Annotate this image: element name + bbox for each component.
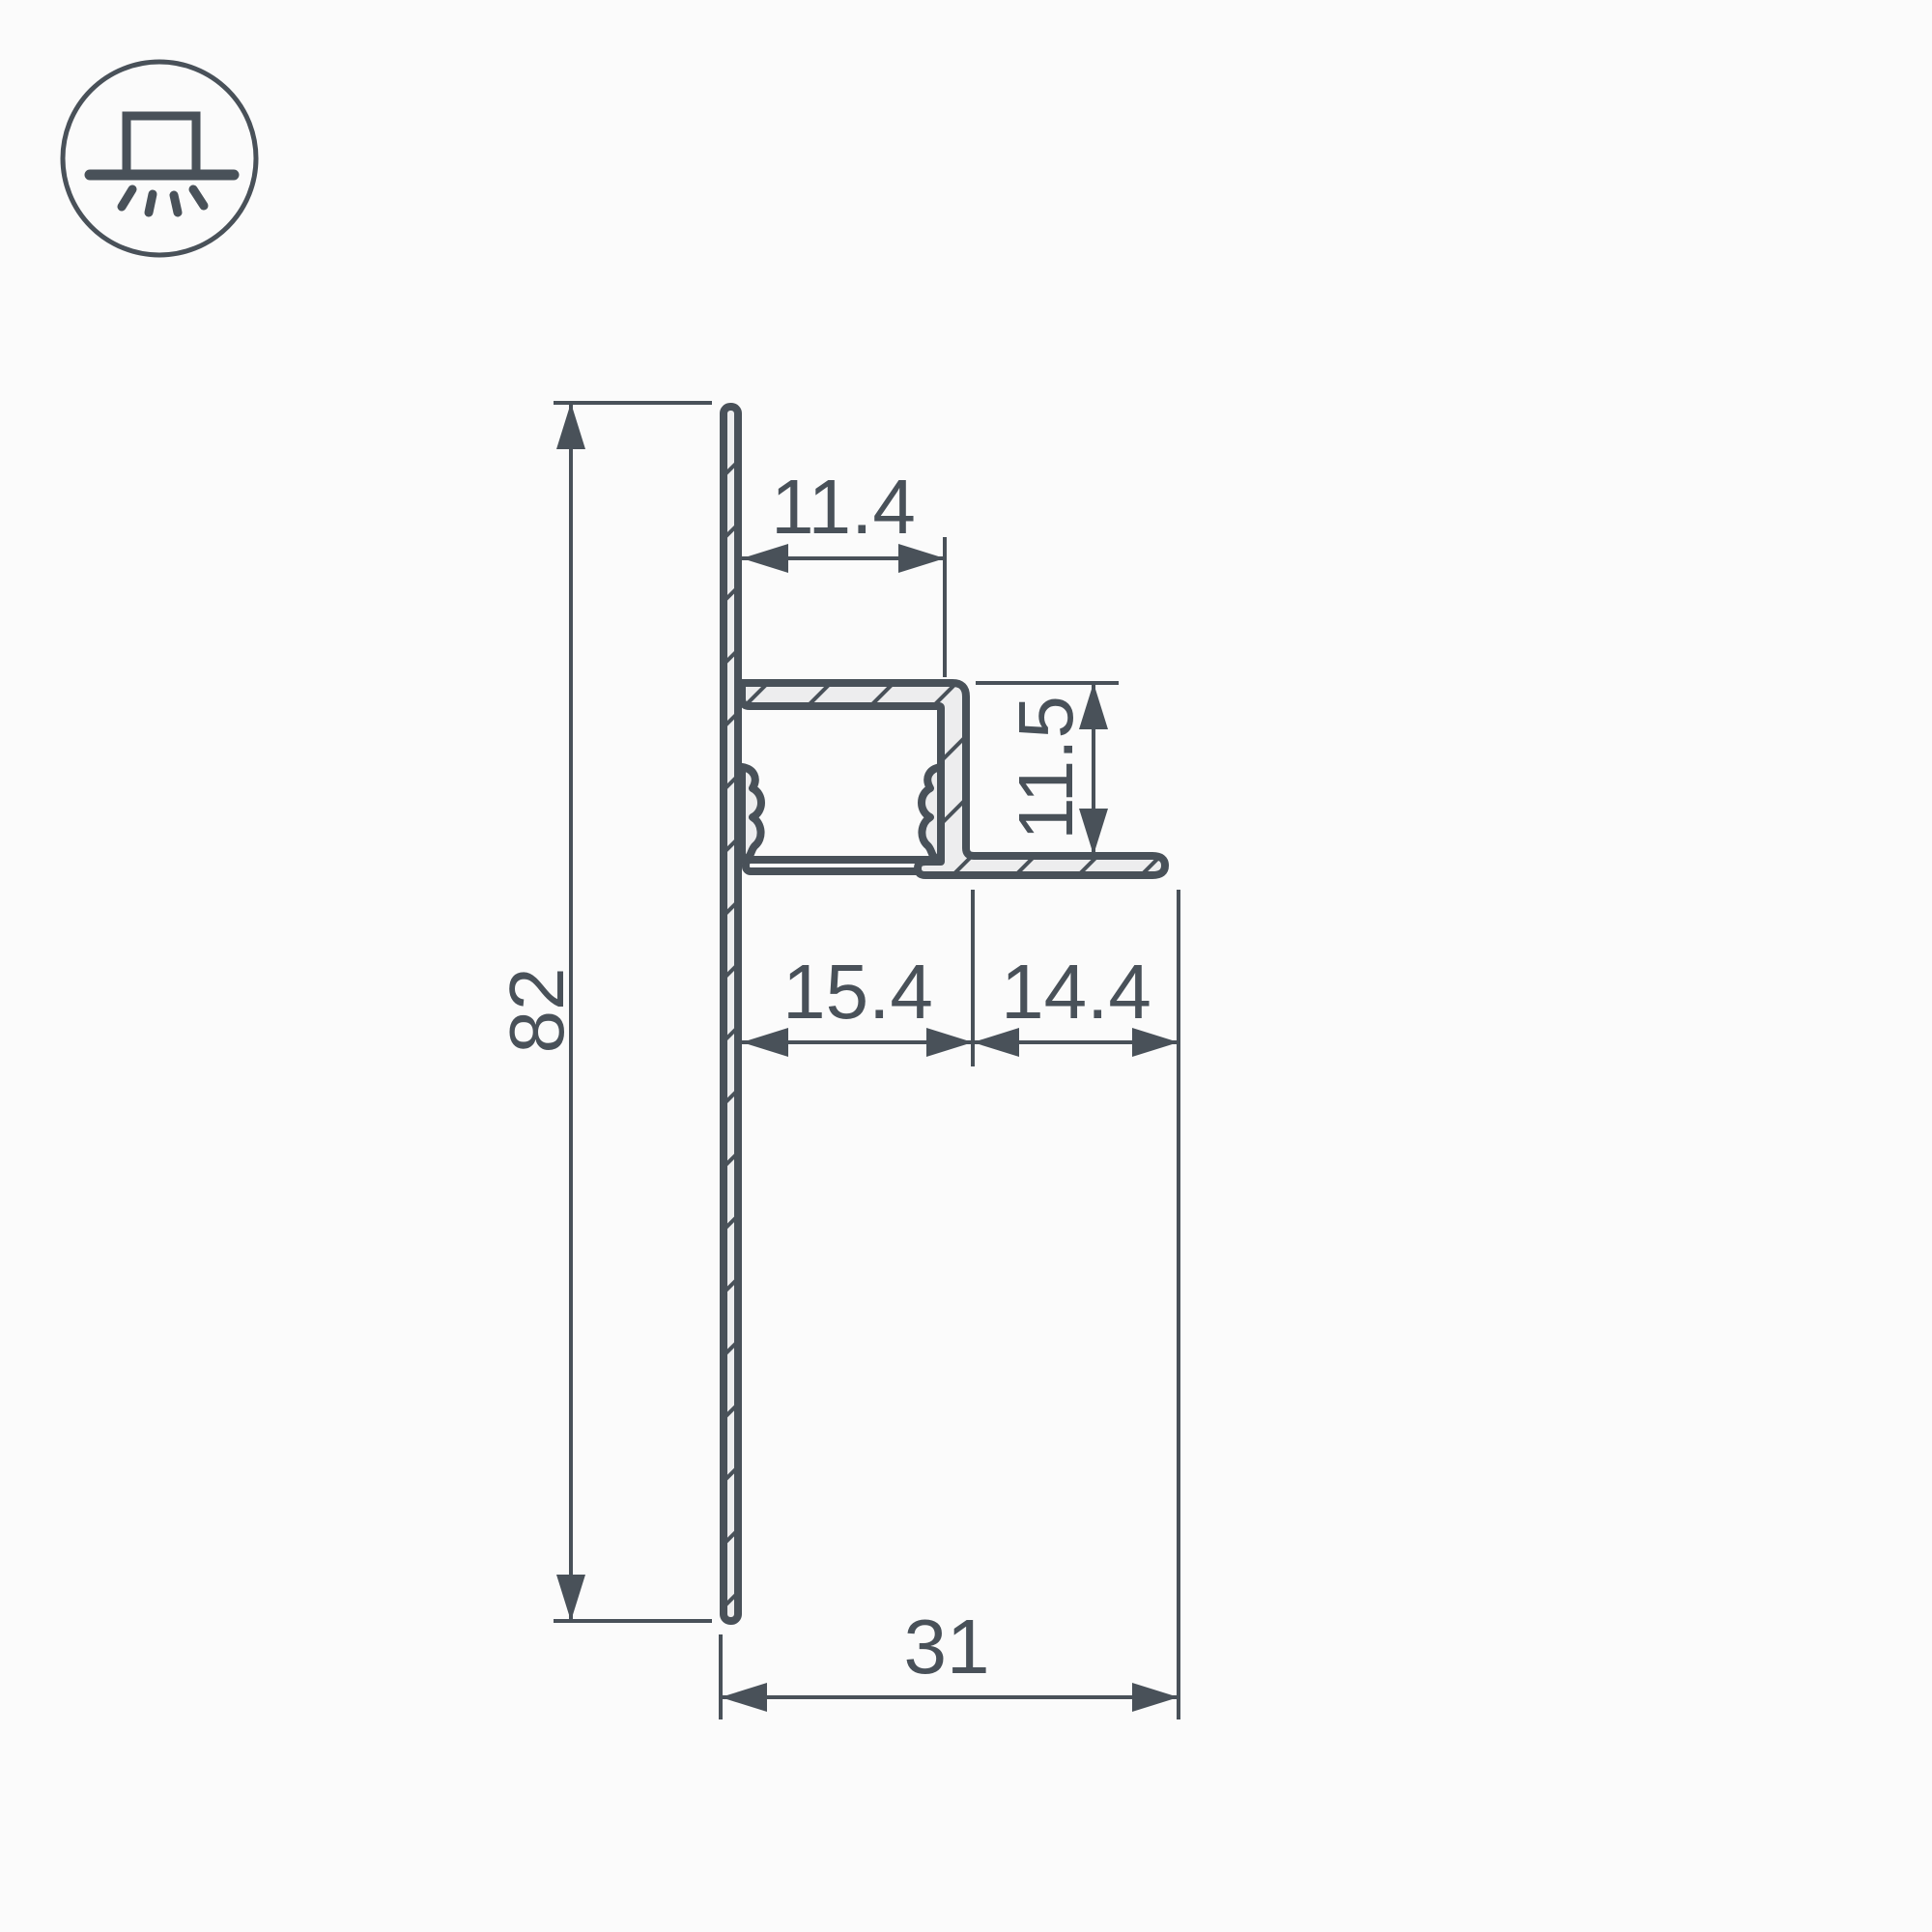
lamp-body-icon bbox=[127, 116, 196, 175]
dim-label-11-5: 11.5 bbox=[1003, 696, 1089, 840]
snap-groove-right bbox=[922, 767, 941, 860]
dim-total-depth: 31 bbox=[721, 1604, 1179, 1719]
dimensions: 82 11.4 11.5 15.4 bbox=[494, 403, 1179, 1719]
arrow-left-icon bbox=[721, 1683, 767, 1712]
diffuser-plate bbox=[746, 860, 938, 871]
wall-plate-section bbox=[724, 407, 738, 1621]
dim-channel-width: 11.4 bbox=[742, 464, 945, 677]
arrow-down-icon bbox=[556, 1575, 585, 1621]
dim-label-31: 31 bbox=[904, 1604, 990, 1690]
arrow-right-icon bbox=[926, 1028, 973, 1057]
dim-channel-outer-width: 15.4 bbox=[742, 890, 973, 1066]
light-rays-icon bbox=[122, 189, 204, 213]
dim-step-height: 11.5 bbox=[976, 683, 1119, 855]
arrow-left-icon bbox=[742, 1028, 788, 1057]
arrow-right-icon bbox=[1132, 1683, 1179, 1712]
dim-label-11-4: 11.4 bbox=[771, 464, 916, 550]
dim-profile-height: 82 bbox=[494, 403, 712, 1621]
snap-groove-left bbox=[742, 767, 761, 860]
dim-label-14-4: 14.4 bbox=[1001, 949, 1151, 1035]
dim-label-15-4: 15.4 bbox=[782, 949, 933, 1035]
icon-circle bbox=[63, 62, 256, 255]
dim-flange-width: 14.4 bbox=[973, 890, 1179, 1719]
arrow-up-icon bbox=[556, 403, 585, 449]
profile-cross-section-drawing: 82 11.4 11.5 15.4 bbox=[0, 0, 1932, 1932]
technical-drawing-canvas: 82 11.4 11.5 15.4 bbox=[0, 0, 1932, 1932]
mount-type-icon bbox=[63, 62, 256, 255]
dim-label-82: 82 bbox=[494, 968, 580, 1054]
